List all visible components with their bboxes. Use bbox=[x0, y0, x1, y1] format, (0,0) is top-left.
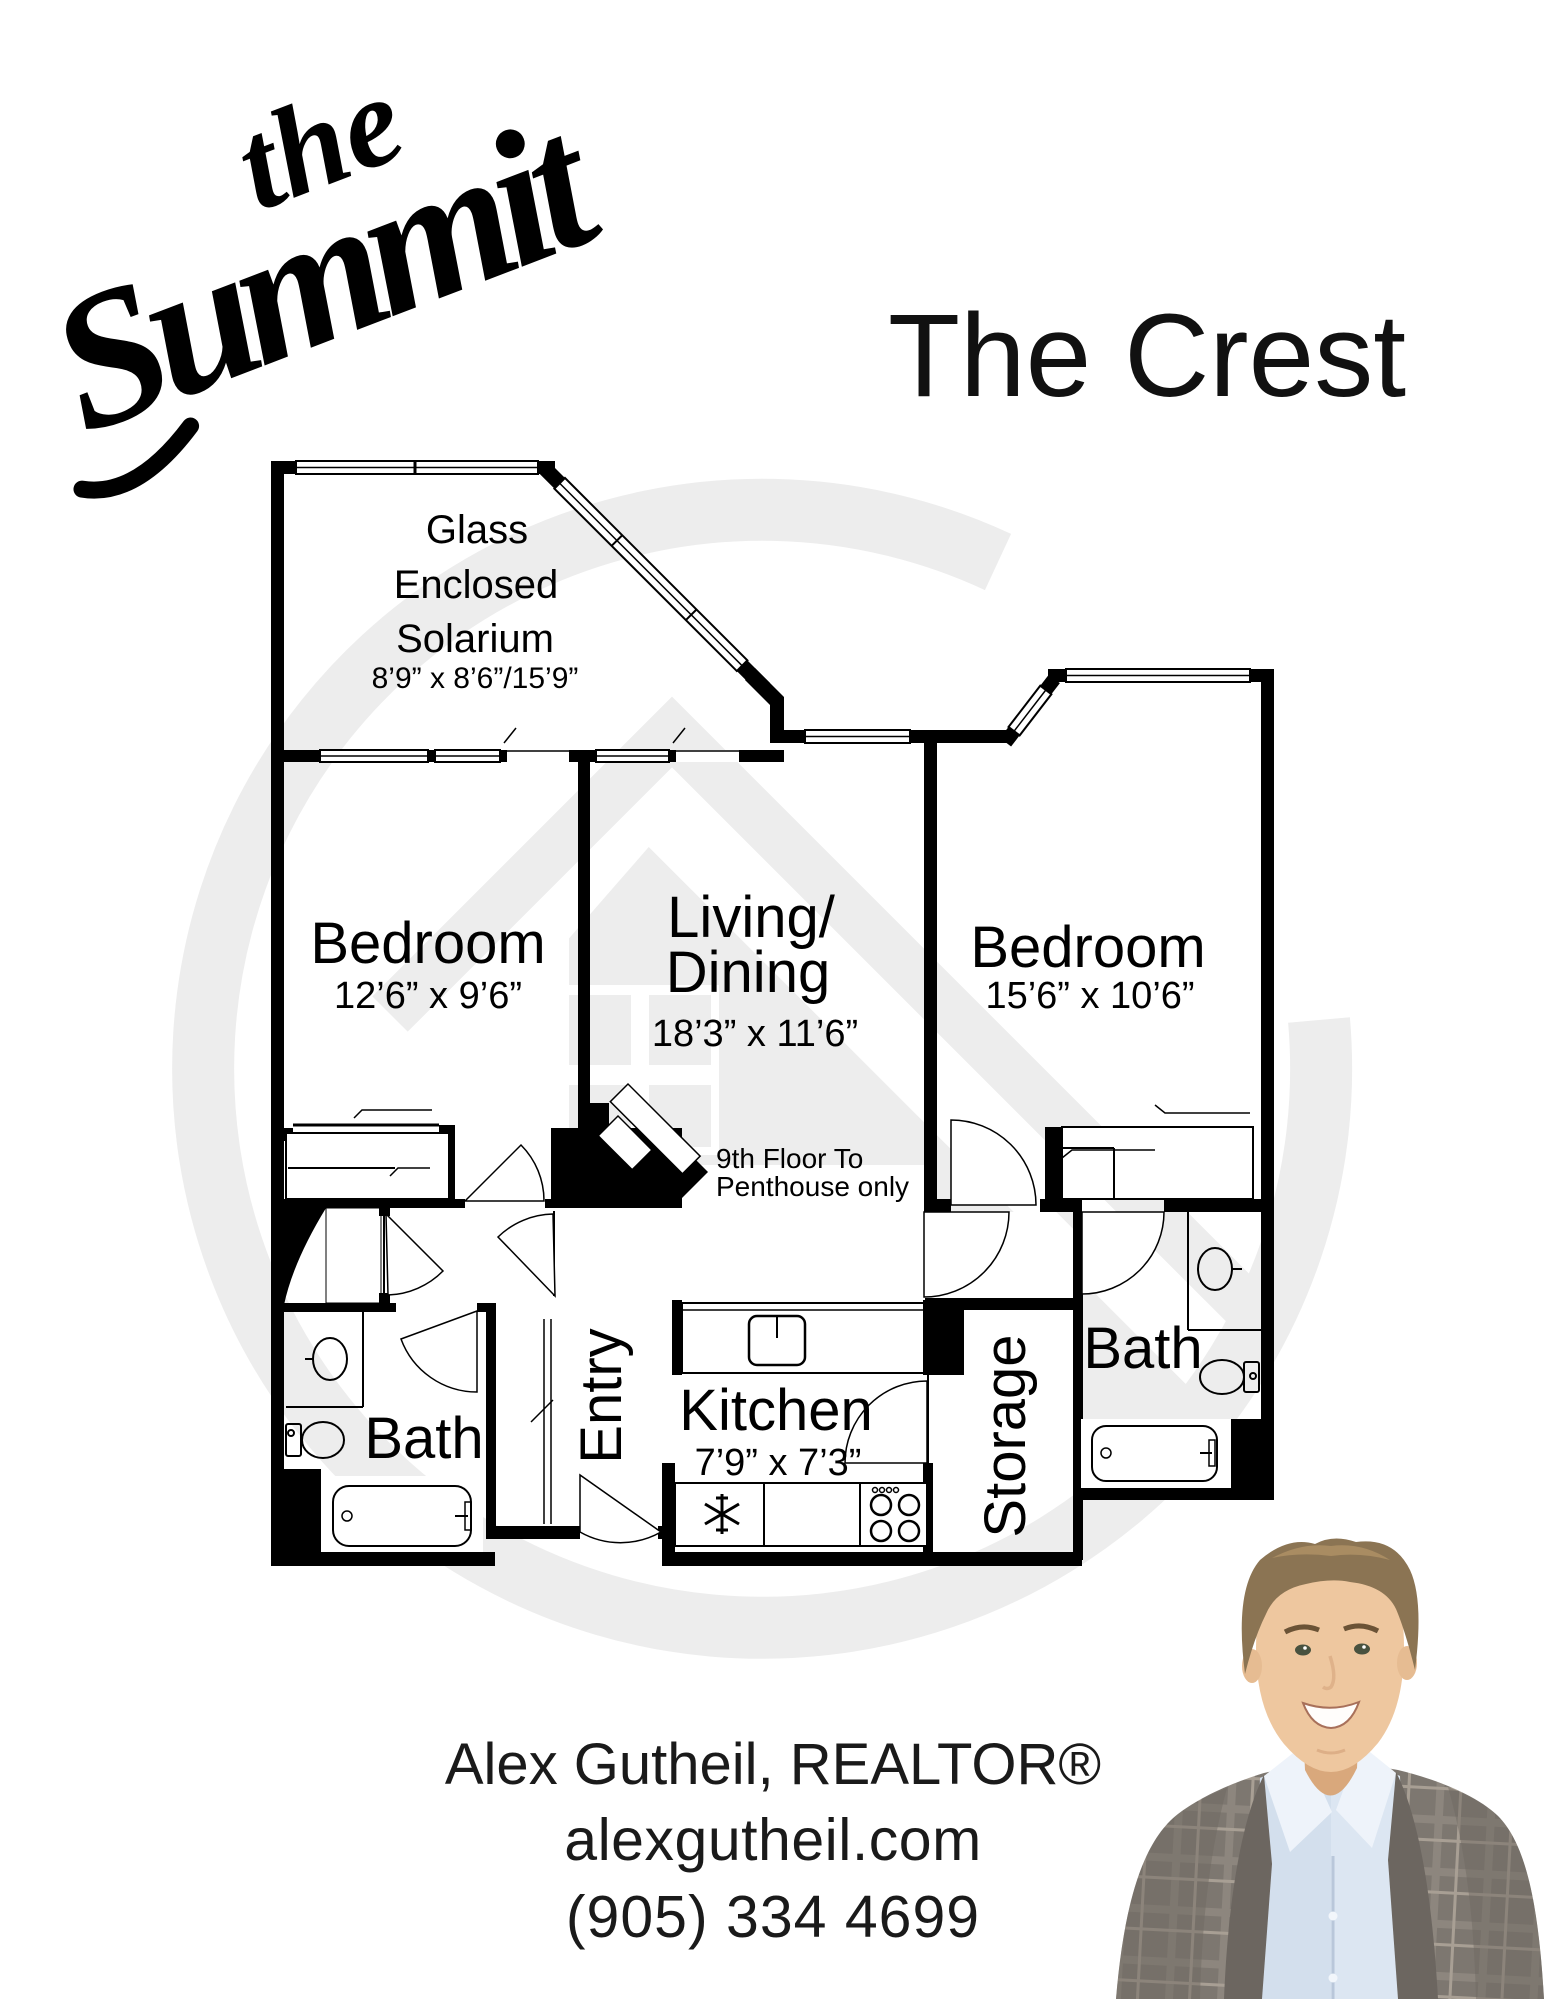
svg-text:Penthouse only: Penthouse only bbox=[716, 1171, 909, 1202]
svg-text:18’3” x 11’6”: 18’3” x 11’6” bbox=[652, 1013, 858, 1055]
svg-text:Alex Gutheil, REALTOR®: Alex Gutheil, REALTOR® bbox=[445, 1732, 1101, 1797]
svg-text:Glass: Glass bbox=[426, 508, 528, 552]
svg-text:alexgutheil.com: alexgutheil.com bbox=[564, 1807, 981, 1873]
svg-text:15’6” x 10’6”: 15’6” x 10’6” bbox=[985, 975, 1194, 1017]
svg-text:(905) 334 4699: (905) 334 4699 bbox=[566, 1884, 980, 1950]
svg-text:The Crest: The Crest bbox=[888, 290, 1406, 422]
svg-text:Kitchen: Kitchen bbox=[679, 1378, 872, 1443]
svg-text:Entry: Entry bbox=[569, 1328, 634, 1463]
svg-text:Storage: Storage bbox=[973, 1334, 1038, 1537]
svg-text:Dining: Dining bbox=[666, 940, 830, 1005]
svg-text:12’6” x 9’6”: 12’6” x 9’6” bbox=[334, 975, 522, 1017]
svg-text:7’9” x 7’3”: 7’9” x 7’3” bbox=[695, 1442, 862, 1484]
svg-text:Bedroom: Bedroom bbox=[970, 915, 1205, 980]
svg-text:Bath: Bath bbox=[1083, 1316, 1202, 1381]
svg-text:Enclosed: Enclosed bbox=[394, 563, 559, 607]
svg-text:Bath: Bath bbox=[364, 1406, 483, 1471]
svg-text:9th Floor To: 9th Floor To bbox=[716, 1143, 863, 1174]
svg-text:8’9” x 8’6”/15’9”: 8’9” x 8’6”/15’9” bbox=[372, 662, 579, 695]
svg-text:Solarium: Solarium bbox=[396, 617, 554, 661]
svg-text:Bedroom: Bedroom bbox=[310, 911, 545, 976]
